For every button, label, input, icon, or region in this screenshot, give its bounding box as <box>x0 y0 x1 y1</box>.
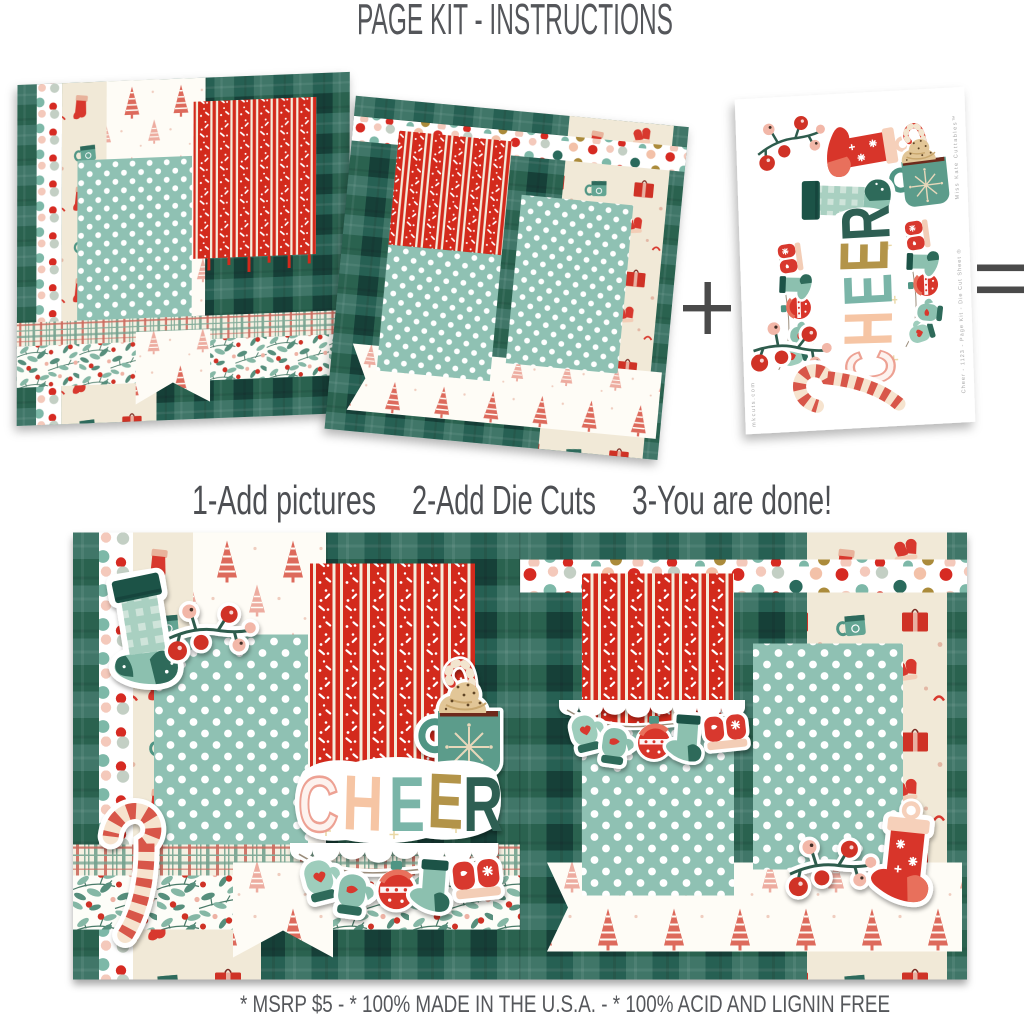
svg-text:3-You are done!: 3-You are done! <box>632 477 832 523</box>
svg-text:1-Add pictures: 1-Add pictures <box>192 477 376 523</box>
svg-text:* MSRP $5 - * 100% MADE IN T: * MSRP $5 - * 100% MADE IN THE U.S.A. - … <box>240 991 890 1018</box>
svg-text:PAGE KIT - INSTRUCTIONS: PAGE KIT - INSTRUCTIONS <box>357 0 673 44</box>
svg-text:2-Add Die Cuts: 2-Add Die Cuts <box>412 477 596 523</box>
